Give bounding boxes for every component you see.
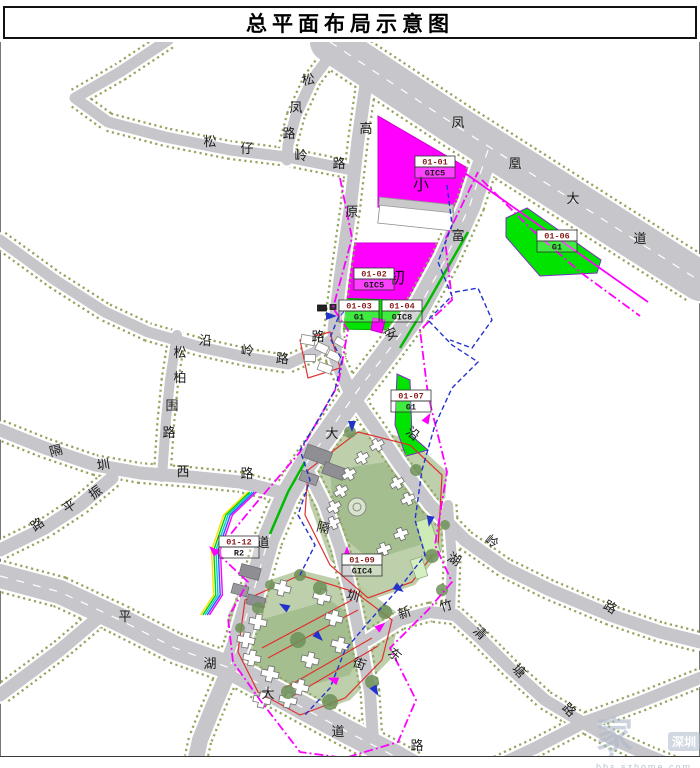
road-name-char: 路 xyxy=(410,738,423,753)
parcel-id: 01-09 xyxy=(349,556,375,566)
title-box: 总平面布局示意图 xyxy=(3,6,697,39)
parcel-code: R2 xyxy=(234,549,244,559)
road-name-char: 围 xyxy=(165,398,178,413)
roundabout-feature xyxy=(348,498,366,516)
tree xyxy=(290,632,306,648)
tree xyxy=(410,464,422,476)
road-name-char: 大 xyxy=(566,191,579,206)
road-name-char: 松 xyxy=(173,345,186,360)
parcel-code: GIC8 xyxy=(392,313,412,323)
road-name-char: 湖 xyxy=(203,656,216,671)
road-name-char: 松 xyxy=(203,134,216,149)
tree xyxy=(252,602,264,614)
road-name-char: 原 xyxy=(345,204,358,219)
parcel-label-01-07: 01-07G1 xyxy=(391,390,431,413)
site-plan-image: 松凤路松仔岭路高原路凤凰大道富安大道沿岭路松柏围路隔圳西路振平路平湖大道路沿岭路… xyxy=(0,0,700,768)
parcel-label-01-02: 01-02GIC5 xyxy=(354,268,394,291)
parcel-code: GIC5 xyxy=(425,169,445,179)
road-name-char: 路 xyxy=(311,329,324,344)
road-name-char: 道 xyxy=(331,724,344,739)
master-plan-map: 松凤路松仔岭路高原路凤凰大道富安大道沿岭路松柏围路隔圳西路振平路平湖大道路沿岭路… xyxy=(0,0,700,756)
building-footprint xyxy=(305,355,316,362)
title-band: 总平面布局示意图 xyxy=(0,0,700,42)
road-name-char: 富 xyxy=(451,228,464,243)
parcel-id: 01-01 xyxy=(422,158,448,168)
parcel-label-01-03: 01-03G1 xyxy=(339,300,379,323)
road-name-char: 高 xyxy=(359,121,372,136)
road-name-char: 凤 xyxy=(289,100,302,115)
tree xyxy=(365,675,379,689)
parcel-label-01-01: 01-01GIC5 xyxy=(415,156,455,179)
building-footprint xyxy=(318,305,327,311)
parcel-code: GIC4 xyxy=(352,567,372,577)
magenta-arrow xyxy=(422,411,434,425)
road-name-char: 松 xyxy=(301,71,316,88)
road-name-char: 大 xyxy=(261,686,274,701)
road-name-char: 大 xyxy=(325,426,338,441)
bottom-band: bbs.szhome.com xyxy=(0,756,700,768)
parcel-code: GIC5 xyxy=(364,281,384,291)
parcel-code: G1 xyxy=(406,403,416,413)
parcel-id: 01-04 xyxy=(389,302,415,312)
page-title: 总平面布局示意图 xyxy=(246,8,454,38)
blue-dashed-line xyxy=(450,288,492,348)
tree xyxy=(436,584,448,596)
tree xyxy=(281,685,295,699)
parcel-id: 01-03 xyxy=(346,302,372,312)
road-name-char: 路 xyxy=(332,156,345,171)
road-name-char: 圳 xyxy=(96,456,111,473)
tree xyxy=(344,426,356,438)
parcel-label-01-06: 01-06G1 xyxy=(537,230,577,253)
road-name-char: 路 xyxy=(282,126,295,141)
casing-yanling-lu-west xyxy=(0,240,336,364)
road-branch-sw xyxy=(0,612,105,695)
tree xyxy=(378,605,392,619)
road-name-char: 岭 xyxy=(240,342,254,358)
parcel-label-01-12: 01-12R2 xyxy=(219,536,259,559)
tree xyxy=(322,694,338,710)
parcel-id: 01-02 xyxy=(361,270,387,280)
parcel-label-01-09: 01-09GIC4 xyxy=(342,554,382,577)
tree xyxy=(425,549,439,563)
parcel-id: 01-12 xyxy=(226,538,252,548)
road-name-char: 凤 xyxy=(451,115,464,130)
parcel-id: 01-06 xyxy=(544,232,570,242)
watermark-url: bbs.szhome.com xyxy=(596,762,692,768)
road-name-char: 路 xyxy=(240,466,253,481)
parcel-code: G1 xyxy=(552,243,562,253)
tree xyxy=(440,520,450,530)
road-name-char: 西 xyxy=(176,464,189,479)
school-mark: 小 xyxy=(413,176,429,194)
road-name-char: 柏 xyxy=(173,370,186,385)
tree xyxy=(313,581,327,595)
road-name-char: 仔 xyxy=(240,141,253,156)
parcel-label-01-04: 01-04GIC8 xyxy=(382,300,422,323)
parcel-code: G1 xyxy=(354,313,364,323)
parcel-id: 01-07 xyxy=(398,392,424,402)
road-name-char: 道 xyxy=(633,231,646,246)
road-name-char: 岭 xyxy=(294,148,307,163)
road-name-char: 沿 xyxy=(198,332,212,348)
tree xyxy=(235,623,245,633)
tree xyxy=(265,580,275,590)
road-name-char: 路 xyxy=(275,350,289,366)
road-name-char: 路 xyxy=(162,425,175,440)
road-name-char: 凰 xyxy=(508,156,521,171)
road-name-char: 平 xyxy=(118,609,131,624)
